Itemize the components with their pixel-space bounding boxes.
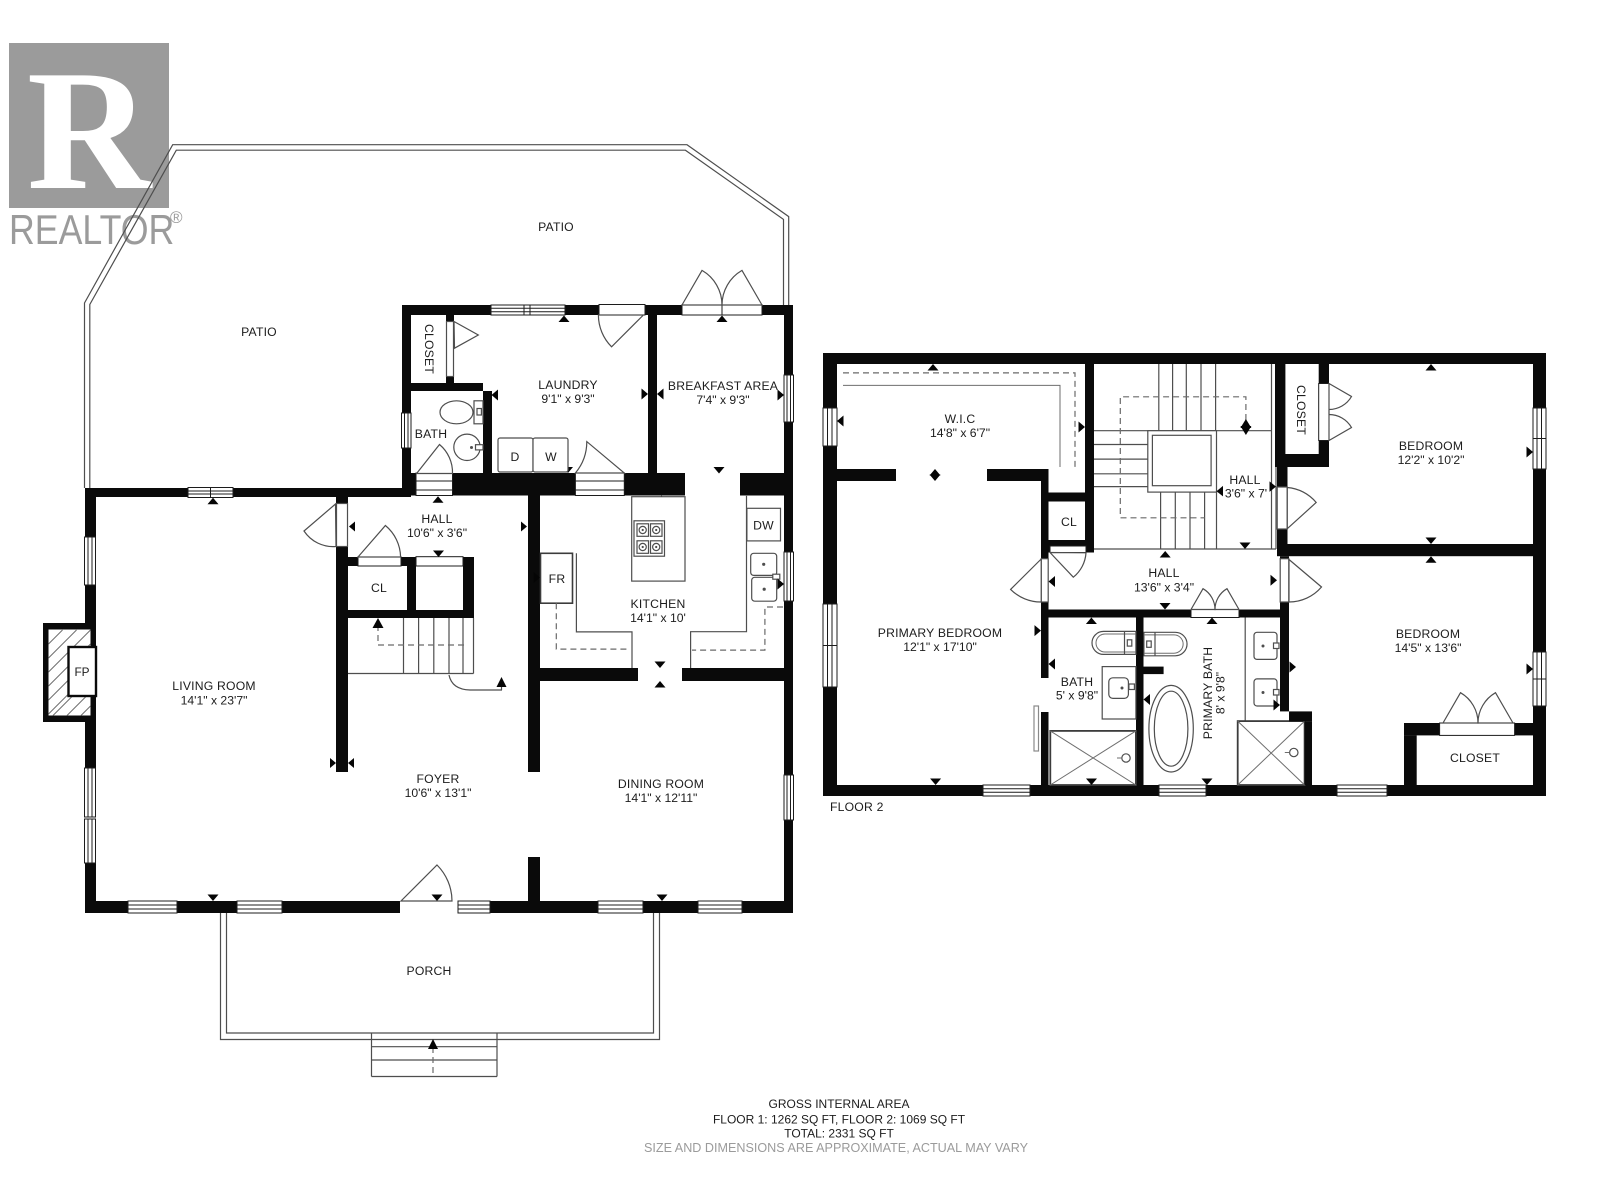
svg-text:BEDROOM: BEDROOM bbox=[1399, 439, 1463, 453]
svg-text:DW: DW bbox=[753, 519, 774, 533]
svg-text:14'1" x 23'7": 14'1" x 23'7" bbox=[181, 694, 248, 708]
svg-text:FP: FP bbox=[74, 665, 89, 679]
svg-text:W.I.C: W.I.C bbox=[945, 412, 976, 426]
svg-text:PRIMARY BEDROOM: PRIMARY BEDROOM bbox=[878, 626, 1002, 640]
svg-text:9'1" x 9'3": 9'1" x 9'3" bbox=[541, 392, 594, 406]
svg-text:3'6" x 7': 3'6" x 7' bbox=[1225, 487, 1267, 501]
svg-text:BEDROOM: BEDROOM bbox=[1396, 627, 1460, 641]
svg-text:CL: CL bbox=[371, 581, 387, 595]
svg-text:®: ® bbox=[170, 208, 183, 227]
svg-text:13'6" x 3'4": 13'6" x 3'4" bbox=[1134, 581, 1194, 595]
svg-text:W: W bbox=[545, 450, 557, 464]
svg-text:GROSS INTERNAL AREA: GROSS INTERNAL AREA bbox=[769, 1097, 910, 1111]
svg-text:14'8" x 6'7": 14'8" x 6'7" bbox=[930, 426, 990, 440]
svg-text:FOYER: FOYER bbox=[417, 772, 460, 786]
svg-text:10'6" x 13'1": 10'6" x 13'1" bbox=[405, 786, 472, 800]
svg-text:FLOOR 1: 1262 SQ FT, FLOOR 2:: FLOOR 1: 1262 SQ FT, FLOOR 2: 1069 SQ FT bbox=[713, 1113, 966, 1127]
svg-text:LIVING ROOM: LIVING ROOM bbox=[172, 679, 255, 693]
svg-text:14'5" x 13'6": 14'5" x 13'6" bbox=[1395, 641, 1462, 655]
svg-text:PATIO: PATIO bbox=[538, 220, 574, 234]
svg-text:12'1" x 17'10": 12'1" x 17'10" bbox=[903, 640, 977, 654]
svg-text:HALL: HALL bbox=[1229, 473, 1260, 487]
svg-text:14'1" x 10': 14'1" x 10' bbox=[630, 611, 686, 625]
svg-text:DINING ROOM: DINING ROOM bbox=[618, 777, 704, 791]
svg-text:CLOSET: CLOSET bbox=[422, 324, 436, 374]
svg-text:CLOSET: CLOSET bbox=[1294, 385, 1308, 435]
svg-text:5' x 9'8": 5' x 9'8" bbox=[1056, 689, 1098, 703]
svg-text:FR: FR bbox=[549, 572, 566, 586]
svg-text:LAUNDRY: LAUNDRY bbox=[538, 378, 597, 392]
svg-text:REALTOR: REALTOR bbox=[9, 207, 174, 253]
svg-text:BATH: BATH bbox=[1061, 675, 1093, 689]
svg-text:SIZE AND DIMENSIONS ARE APPROX: SIZE AND DIMENSIONS ARE APPROXIMATE, ACT… bbox=[644, 1141, 1029, 1155]
svg-text:HALL: HALL bbox=[1148, 566, 1179, 580]
svg-text:KITCHEN: KITCHEN bbox=[631, 597, 686, 611]
svg-text:R: R bbox=[27, 36, 153, 226]
svg-text:BATH: BATH bbox=[415, 427, 447, 441]
svg-text:12'2" x 10'2": 12'2" x 10'2" bbox=[1398, 453, 1465, 467]
svg-text:PORCH: PORCH bbox=[406, 964, 451, 978]
svg-text:CL: CL bbox=[1061, 515, 1077, 529]
svg-text:HALL: HALL bbox=[421, 512, 452, 526]
svg-text:FLOOR 2: FLOOR 2 bbox=[830, 800, 884, 814]
svg-text:10'6" x 3'6": 10'6" x 3'6" bbox=[407, 526, 467, 540]
svg-text:TOTAL: 2331 SQ FT: TOTAL: 2331 SQ FT bbox=[784, 1127, 894, 1141]
svg-text:7'4" x 9'3": 7'4" x 9'3" bbox=[696, 393, 749, 407]
svg-text:CLOSET: CLOSET bbox=[1450, 751, 1500, 765]
svg-text:BREAKFAST AREA: BREAKFAST AREA bbox=[668, 379, 779, 393]
svg-text:D: D bbox=[510, 450, 519, 464]
svg-text:PATIO: PATIO bbox=[241, 325, 277, 339]
svg-text:8' x 9'8": 8' x 9'8" bbox=[1214, 672, 1228, 714]
svg-text:14'1" x 12'11": 14'1" x 12'11" bbox=[625, 791, 698, 805]
